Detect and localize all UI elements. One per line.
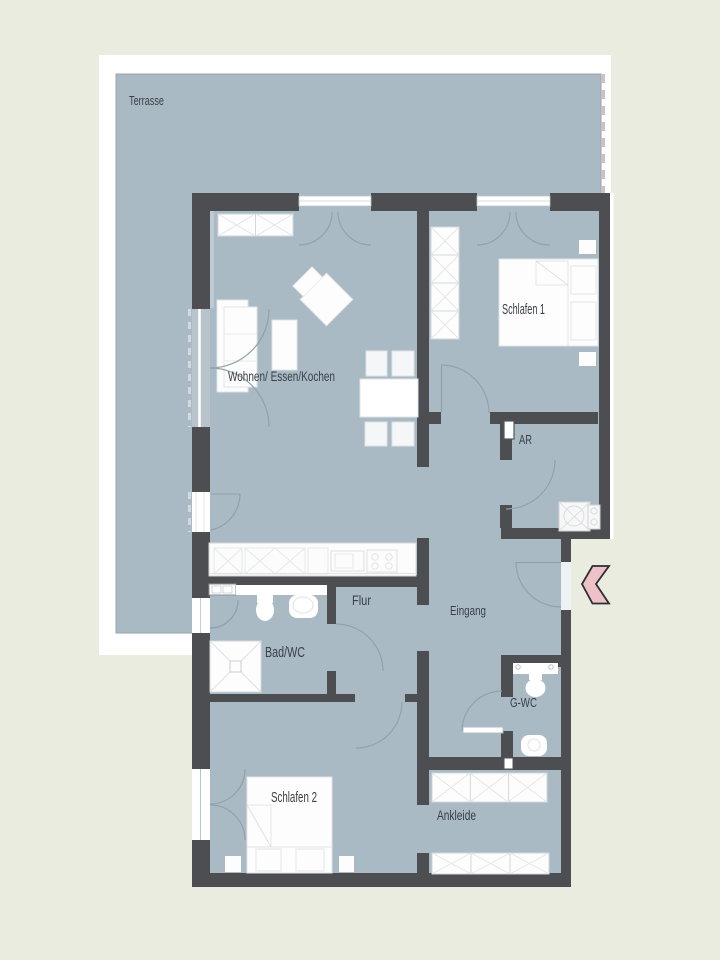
svg-text:Schlafen 1: Schlafen 1	[502, 301, 545, 318]
svg-text:Schlafen 2: Schlafen 2	[271, 789, 317, 806]
svg-text:Eingang: Eingang	[450, 603, 486, 618]
svg-text:Ankleide: Ankleide	[437, 807, 476, 823]
svg-text:Bad/WC: Bad/WC	[265, 644, 305, 661]
svg-text:Flur: Flur	[352, 592, 371, 608]
svg-text:G-WC: G-WC	[510, 695, 537, 710]
svg-text:Wohnen/ Essen/Kochen: Wohnen/ Essen/Kochen	[228, 369, 335, 384]
svg-text:AR: AR	[519, 432, 532, 447]
svg-text:Terrasse: Terrasse	[129, 93, 164, 108]
